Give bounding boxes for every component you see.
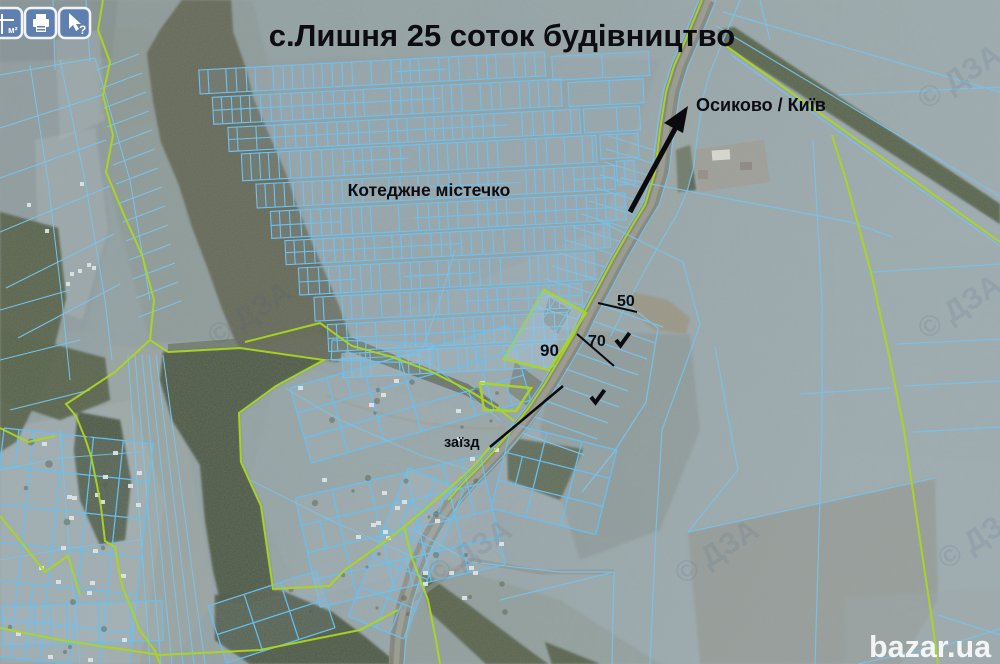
svg-text:70: 70 xyxy=(588,333,606,350)
svg-text:?: ? xyxy=(79,23,86,37)
svg-text:м²: м² xyxy=(8,25,18,35)
svg-text:50: 50 xyxy=(617,293,635,310)
svg-text:заїзд: заїзд xyxy=(444,435,480,451)
svg-text:Осиково / Київ: Осиково / Київ xyxy=(696,95,826,115)
svg-text:90: 90 xyxy=(540,341,559,360)
svg-text:bazar.ua: bazar.ua xyxy=(869,630,992,664)
svg-text:Котеджне містечко: Котеджне містечко xyxy=(348,180,511,200)
svg-text:с.Лишня 25 соток будівництво: с.Лишня 25 соток будівництво xyxy=(269,18,735,53)
